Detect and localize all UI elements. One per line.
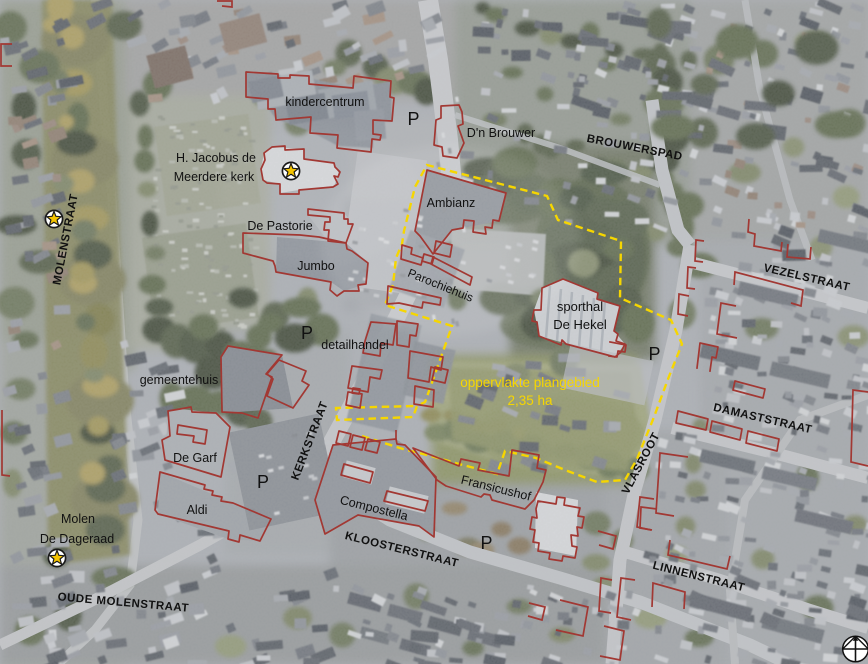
svg-text:De Hekel: De Hekel — [553, 317, 607, 332]
svg-text:De Garf: De Garf — [173, 451, 217, 465]
svg-text:oppervlakte plangebied: oppervlakte plangebied — [460, 375, 600, 390]
svg-text:P: P — [648, 344, 660, 364]
svg-text:gemeentehuis: gemeentehuis — [140, 373, 219, 387]
svg-text:sporthal: sporthal — [557, 299, 603, 314]
svg-text:P: P — [301, 323, 313, 343]
svg-text:Molen: Molen — [61, 512, 95, 526]
svg-text:P: P — [480, 533, 492, 553]
svg-text:Aldi: Aldi — [187, 503, 208, 517]
svg-text:De Pastorie: De Pastorie — [247, 219, 312, 233]
svg-text:detailhandel: detailhandel — [321, 338, 388, 352]
svg-text:Jumbo: Jumbo — [297, 259, 335, 273]
svg-text:D'n Brouwer: D'n Brouwer — [467, 126, 535, 140]
svg-text:De Dageraad: De Dageraad — [40, 532, 114, 546]
svg-text:P: P — [257, 472, 269, 492]
svg-text:P: P — [407, 109, 419, 129]
svg-text:2,35 ha: 2,35 ha — [507, 393, 553, 408]
svg-text:Meerdere kerk: Meerdere kerk — [174, 170, 255, 184]
svg-text:H. Jacobus de: H. Jacobus de — [176, 151, 256, 165]
svg-text:kindercentrum: kindercentrum — [285, 95, 364, 109]
svg-text:Ambianz: Ambianz — [427, 196, 476, 210]
